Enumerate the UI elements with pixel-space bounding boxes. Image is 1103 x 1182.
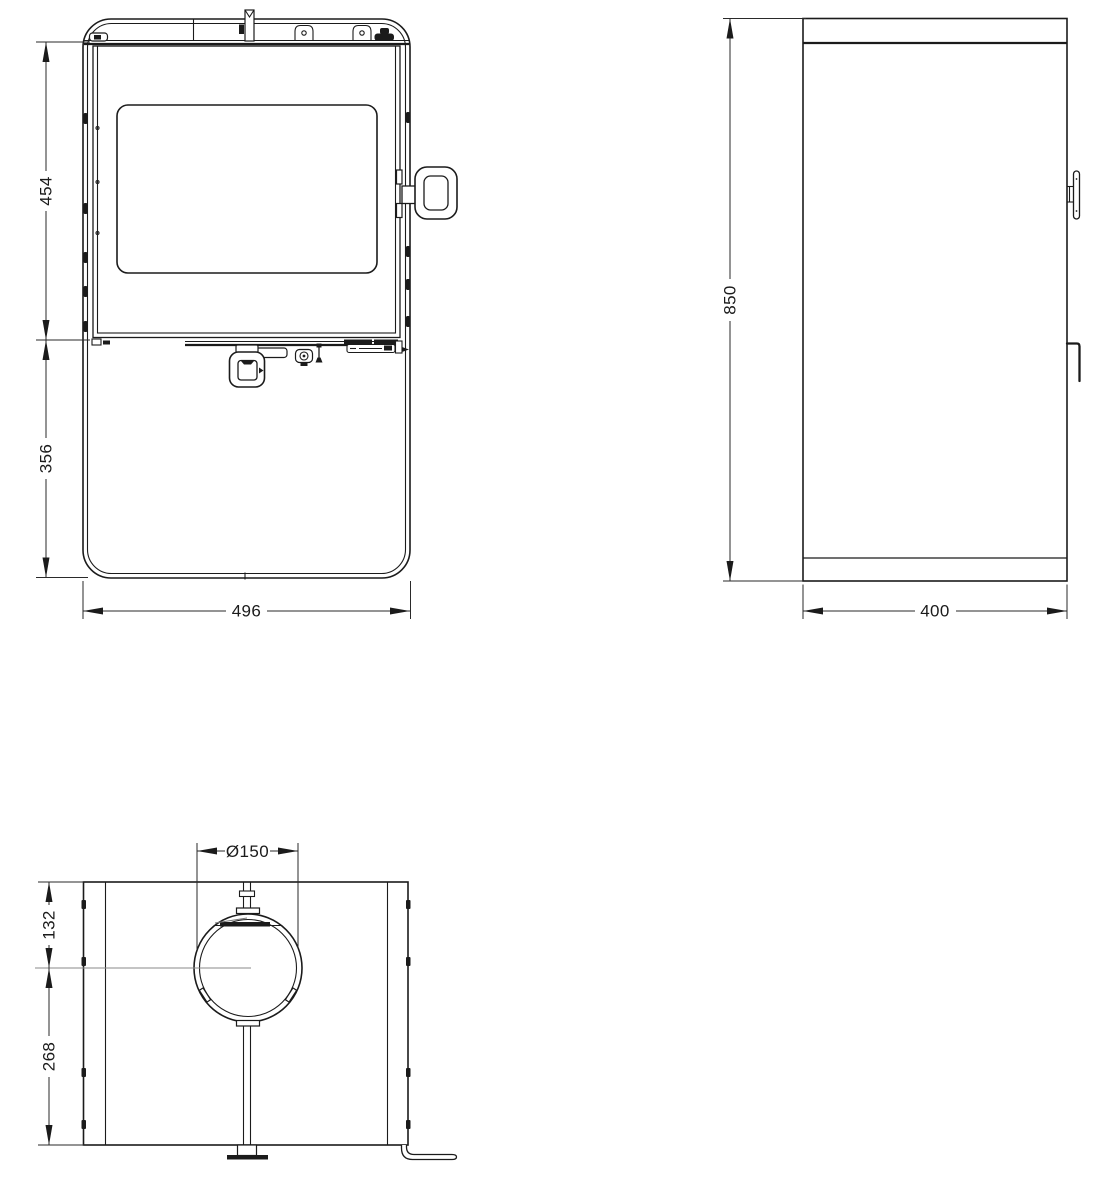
drawing-page: 454 356 496 [0,0,1103,1182]
dim-label-front-width: 496 [232,602,262,621]
dim-label-flue-offset-bottom: 268 [40,1042,59,1072]
dim-label-flue-diameter: Ø150 [226,842,269,861]
dim-label-front-lower-height: 356 [37,444,56,474]
stove-dimension-drawing: 454 356 496 [0,0,1103,1182]
canvas-background [0,0,1103,1182]
dim-label-flue-offset-top: 132 [40,910,59,940]
riddling-lever [344,340,409,354]
dim-label-side-height: 850 [721,285,740,315]
air-control-knob [230,352,265,387]
dim-label-side-depth: 400 [920,602,950,621]
hinge-cap-left [90,33,108,41]
dim-label-front-upper-height: 454 [37,176,56,206]
